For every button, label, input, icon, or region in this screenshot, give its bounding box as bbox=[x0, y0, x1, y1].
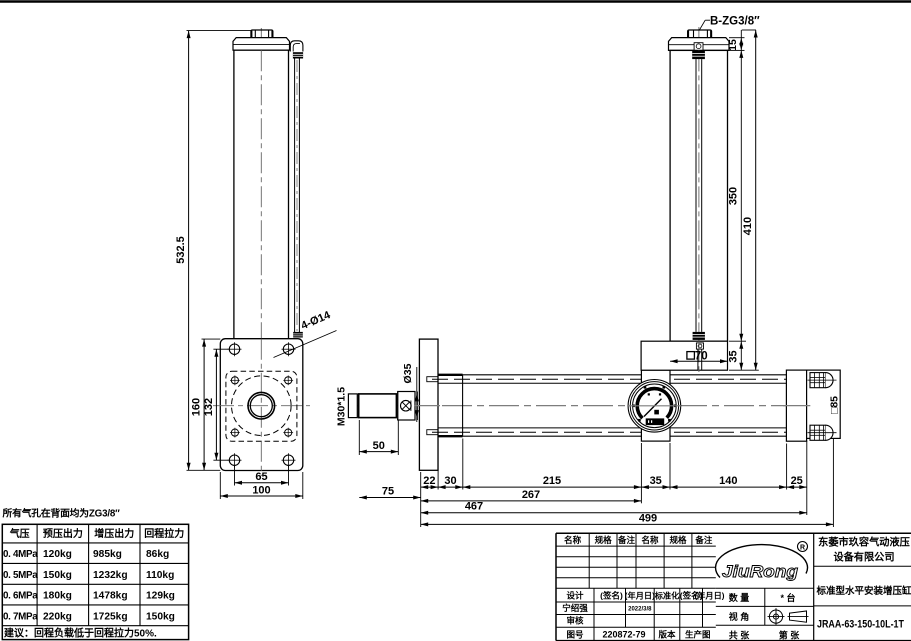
svg-text:图号: 图号 bbox=[566, 629, 584, 639]
svg-text:回程拉力: 回程拉力 bbox=[144, 527, 184, 540]
svg-text:0. 7MPa: 0. 7MPa bbox=[3, 611, 38, 622]
svg-text:名称: 名称 bbox=[642, 535, 660, 545]
svg-text:35: 35 bbox=[650, 475, 662, 487]
svg-text:22: 22 bbox=[423, 475, 435, 487]
svg-text:0. 6MPa: 0. 6MPa bbox=[3, 591, 38, 602]
svg-text:160: 160 bbox=[191, 398, 203, 416]
svg-text:备注: 备注 bbox=[694, 535, 713, 545]
svg-text:* 台: * 台 bbox=[780, 592, 795, 603]
svg-text:75: 75 bbox=[382, 486, 394, 498]
svg-text:1725kg: 1725kg bbox=[93, 611, 128, 622]
svg-text:东萎市玖容气动液压: 东萎市玖容气动液压 bbox=[818, 536, 910, 549]
svg-text:(年月日): (年月日) bbox=[694, 591, 724, 601]
svg-text:150kg: 150kg bbox=[43, 570, 72, 581]
svg-text:129kg: 129kg bbox=[146, 591, 175, 602]
svg-text:数 量: 数 量 bbox=[729, 592, 750, 603]
svg-text:1232kg: 1232kg bbox=[93, 570, 128, 581]
svg-text:2022/3/8: 2022/3/8 bbox=[628, 606, 652, 612]
svg-text:86kg: 86kg bbox=[146, 549, 169, 560]
svg-text:30: 30 bbox=[444, 475, 456, 487]
svg-text:审核: 审核 bbox=[566, 616, 584, 626]
svg-text:100: 100 bbox=[252, 484, 270, 496]
svg-text:120kg: 120kg bbox=[43, 549, 72, 560]
svg-text:设备有限公司: 设备有限公司 bbox=[833, 551, 894, 564]
svg-text:15: 15 bbox=[727, 39, 739, 51]
svg-text:220kg: 220kg bbox=[43, 611, 72, 622]
svg-text:25: 25 bbox=[791, 475, 803, 487]
svg-text:所有气孔在背面均为ZG3/8″: 所有气孔在背面均为ZG3/8″ bbox=[3, 507, 121, 520]
svg-text:预压出力: 预压出力 bbox=[43, 527, 83, 540]
svg-text:350: 350 bbox=[727, 187, 739, 205]
svg-text:180kg: 180kg bbox=[43, 591, 72, 602]
svg-text:110kg: 110kg bbox=[146, 570, 174, 581]
svg-text:JiuRong: JiuRong bbox=[722, 562, 799, 581]
svg-text:M30*1.5: M30*1.5 bbox=[336, 387, 348, 426]
svg-text:132: 132 bbox=[203, 398, 215, 416]
svg-text:R: R bbox=[800, 544, 805, 551]
svg-text:设计: 设计 bbox=[566, 591, 584, 601]
svg-text:视 角: 视 角 bbox=[729, 611, 750, 622]
svg-text:1478kg: 1478kg bbox=[93, 591, 128, 602]
svg-text:JRAA-63-150-10L-1T: JRAA-63-150-10L-1T bbox=[817, 619, 904, 631]
svg-text:985kg: 985kg bbox=[93, 549, 122, 560]
svg-text:生产图: 生产图 bbox=[685, 629, 711, 639]
svg-text:0. 5MPa: 0. 5MPa bbox=[3, 570, 38, 581]
svg-text:宁绍强: 宁绍强 bbox=[562, 603, 588, 613]
svg-text:共 张: 共 张 bbox=[729, 630, 751, 641]
svg-text:0. 4MPa: 0. 4MPa bbox=[3, 549, 38, 560]
svg-text:(签名): (签名) bbox=[600, 591, 623, 601]
svg-text:70: 70 bbox=[695, 351, 708, 363]
svg-text:规格: 规格 bbox=[669, 535, 687, 545]
svg-text:499: 499 bbox=[639, 512, 657, 524]
svg-text:35: 35 bbox=[727, 350, 739, 362]
svg-text:版本: 版本 bbox=[657, 629, 676, 639]
svg-text:规格: 规格 bbox=[595, 535, 613, 545]
svg-text:(年月日): (年月日) bbox=[625, 591, 655, 601]
svg-text:□85: □85 bbox=[829, 396, 841, 414]
svg-text:Ø35: Ø35 bbox=[402, 363, 414, 383]
svg-text:140: 140 bbox=[719, 475, 737, 487]
svg-text:50: 50 bbox=[373, 440, 385, 452]
svg-text:410: 410 bbox=[742, 217, 754, 235]
svg-text:215: 215 bbox=[543, 475, 561, 487]
svg-text:标准化: 标准化 bbox=[654, 591, 680, 601]
svg-text:467: 467 bbox=[465, 501, 483, 513]
svg-text:B-ZG3/8″: B-ZG3/8″ bbox=[710, 16, 760, 28]
svg-text:220872-79: 220872-79 bbox=[602, 629, 645, 639]
svg-text:增压出力: 增压出力 bbox=[94, 527, 134, 540]
svg-text:第 张: 第 张 bbox=[779, 630, 801, 641]
svg-text:532.5: 532.5 bbox=[175, 236, 187, 264]
svg-text:267: 267 bbox=[522, 489, 540, 501]
svg-text:65: 65 bbox=[255, 471, 267, 483]
svg-text:150kg: 150kg bbox=[146, 611, 175, 622]
svg-text:名称: 名称 bbox=[564, 535, 582, 545]
svg-text:备注: 备注 bbox=[617, 535, 636, 545]
svg-text:气压: 气压 bbox=[9, 527, 30, 540]
svg-text:标准型水平安装增压缸: 标准型水平安装增压缸 bbox=[816, 585, 911, 597]
svg-text:建议：回程负载低于回程拉力50%.: 建议：回程负载低于回程拉力50%. bbox=[3, 626, 157, 639]
